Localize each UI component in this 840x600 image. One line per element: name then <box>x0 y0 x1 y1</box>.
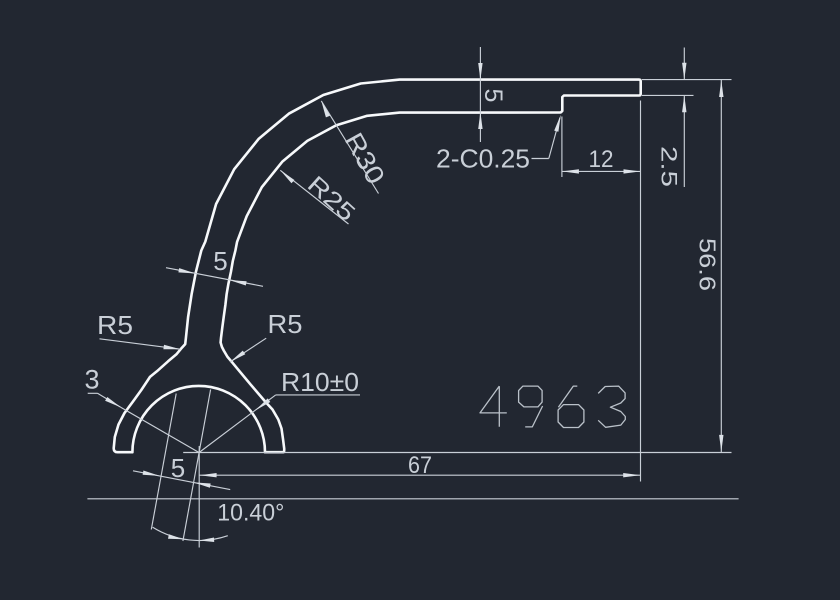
svg-text:R5: R5 <box>97 310 133 340</box>
svg-text:56.6: 56.6 <box>695 238 721 291</box>
svg-text:3: 3 <box>84 365 99 395</box>
svg-text:5: 5 <box>171 453 185 483</box>
svg-text:2.5: 2.5 <box>657 146 682 187</box>
svg-text:12: 12 <box>589 146 614 173</box>
svg-text:5: 5 <box>213 246 227 276</box>
svg-text:R5: R5 <box>268 309 303 339</box>
svg-text:2-C0.25: 2-C0.25 <box>436 144 530 174</box>
svg-text:67: 67 <box>408 452 432 479</box>
svg-text:R10±0: R10±0 <box>281 367 359 397</box>
svg-text:10.40°: 10.40° <box>217 500 284 527</box>
svg-text:5: 5 <box>479 89 507 103</box>
